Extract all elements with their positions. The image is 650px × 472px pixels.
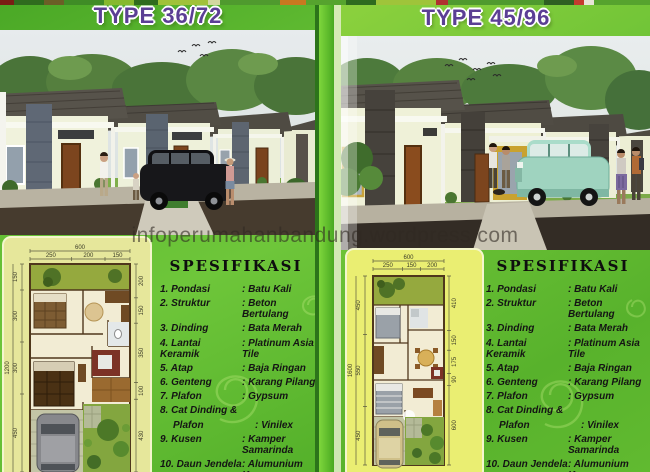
spec-item: 9. Kusen: Kamper Samarinda: [486, 434, 648, 456]
scan-edge-segment: [134, 0, 158, 5]
spec-item-value: : Batu Kali: [242, 284, 322, 295]
spec-item-value: : Baja Ringan: [242, 363, 322, 374]
dimension-label: 300: [13, 362, 19, 373]
spec-item-label: 6. Genteng: [160, 377, 242, 388]
spec-item-value: : Vinilex: [581, 420, 648, 431]
spec-item-value: : Alumunium Kaca: [568, 459, 648, 472]
spec-list-right: 1. Pondasi: Batu Kali2. Struktur: Beton …: [486, 284, 648, 472]
spec-item-value: : Platinum Asia Tile: [568, 338, 648, 360]
brochure-scan: TYPE 36/72 TYPE 45/96: [0, 0, 650, 472]
spec-item: 4. Lantai Keramik: Platinum Asia Tile: [486, 338, 648, 360]
spec-item-value: : Beton Bertulang: [242, 298, 322, 320]
dimension-label: 430: [139, 430, 145, 441]
spec-item-label: 8. Cat Dinding &: [486, 405, 568, 416]
floorplan-card-left: 6002502001501503003004501200200150350100…: [2, 236, 152, 472]
scan-edge-segment: [158, 0, 208, 5]
spec-item: 7. Plafon: Gypsum: [160, 391, 322, 402]
dimension-label: 250: [46, 253, 57, 259]
spec-item-label: 10. Daun Jendela: [486, 459, 568, 472]
spec-item-label: 2. Struktur: [160, 298, 242, 320]
scan-edge-segment: [436, 0, 448, 5]
spec-item: 1. Pondasi: Batu Kali: [486, 284, 648, 295]
spec-item-label: 9. Kusen: [486, 434, 568, 456]
spec-item-value: : Beton Bertulang: [568, 298, 648, 320]
house-rendering-left: [0, 30, 315, 235]
spec-item-label: 1. Pondasi: [486, 284, 568, 295]
spec-item: 10. Daun Jendela: Alumunium Kaca: [486, 459, 648, 472]
scan-edge-segment: [346, 0, 376, 5]
dimension-label: 150: [112, 253, 123, 259]
dimension-annotations: 600250150200450550450160041015017590600: [347, 250, 482, 472]
spec-item-label: 2. Struktur: [486, 298, 568, 320]
dimension-label: 150: [13, 271, 19, 282]
spec-item-value: : Karang Pilang: [242, 377, 322, 388]
dimension-label: 1200: [5, 361, 11, 375]
scan-edge-segment: [64, 0, 104, 5]
spec-item: 9. Kusen: Kamper Samarinda: [160, 434, 322, 456]
spec-item: 6. Genteng: Karang Pilang: [160, 377, 322, 388]
dimension-label: 300: [13, 310, 19, 321]
scan-edge-segment: [280, 0, 306, 5]
dimension-label: 600: [403, 255, 414, 261]
spec-item: 6. Genteng: Karang Pilang: [486, 377, 648, 388]
scan-edge-segment: [44, 0, 64, 5]
scan-edge-segment: [574, 0, 584, 5]
dimension-label: 550: [356, 365, 362, 376]
spec-item-label: Plafon: [160, 420, 255, 431]
scan-edge-segment: [376, 0, 436, 5]
scan-edge-segment: [544, 0, 574, 5]
spec-item: 8. Cat Dinding &: [160, 405, 322, 416]
spec-item: 10. Daun Jendela: Alumunium Kaca: [160, 459, 322, 472]
dimension-label: 450: [356, 300, 362, 311]
spec-item-label: 4. Lantai Keramik: [486, 338, 568, 360]
spec-item: 2. Struktur: Beton Bertulang: [486, 298, 648, 320]
dimension-label: 250: [383, 263, 394, 269]
scan-edge-strip: [0, 0, 650, 5]
spec-item-value: : Platinum Asia Tile: [242, 338, 322, 360]
dimension-label: 600: [75, 245, 86, 251]
dimension-label: 100: [139, 385, 145, 396]
scan-edge-segment: [448, 0, 544, 5]
dog: [493, 189, 505, 195]
spec-item-value: : Gypsum: [242, 391, 322, 402]
floorplan-card-right: 600250150200450550450160041015017590600: [345, 248, 484, 472]
spec-item-label: 3. Dinding: [160, 323, 242, 334]
spec-item-value: : Vinilex: [255, 420, 322, 431]
spec-item-value: : Baja Ringan: [568, 363, 648, 374]
spec-item-label: 1. Pondasi: [160, 284, 242, 295]
scan-edge-segment: [220, 0, 280, 5]
dimension-label: 175: [452, 356, 458, 367]
spec-item: 3. Dinding: Bata Merah: [160, 323, 322, 334]
scan-edge-segment: [104, 0, 134, 5]
house-scene-36: [0, 30, 315, 235]
spec-item-label: 3. Dinding: [486, 323, 568, 334]
fold-divider: [334, 0, 341, 472]
spec-item: Plafon: Vinilex: [160, 420, 322, 431]
dimension-label: 410: [452, 298, 458, 309]
spec-item: 1. Pondasi: Batu Kali: [160, 284, 322, 295]
spec-item-label: Plafon: [486, 420, 581, 431]
dimension-label: 150: [406, 263, 417, 269]
spec-item-label: 6. Genteng: [486, 377, 568, 388]
spec-item-label: 5. Atap: [160, 363, 242, 374]
dimension-label: 350: [139, 347, 145, 358]
page-title-left: TYPE 36/72: [0, 3, 316, 29]
spec-item: 5. Atap: Baja Ringan: [160, 363, 322, 374]
dimension-label: 600: [452, 420, 458, 431]
dimension-label: 200: [83, 253, 94, 259]
scan-edge-segment: [14, 0, 44, 5]
house-scene-45: [341, 36, 650, 250]
scan-edge-segment: [306, 0, 346, 5]
spec-title-left: SPESIFIKASI: [150, 257, 322, 275]
dimension-label: 150: [139, 305, 145, 316]
spec-item-label: 10. Daun Jendela: [160, 459, 242, 472]
spec-item-value: : Alumunium Kaca: [242, 459, 322, 472]
spec-item-value: : Gypsum: [568, 391, 648, 402]
spec-item: 7. Plafon: Gypsum: [486, 391, 648, 402]
scan-edge-segment: [584, 0, 594, 5]
page-title-right: TYPE 45/96: [322, 5, 650, 31]
spec-item-label: 4. Lantai Keramik: [160, 338, 242, 360]
spec-item-value: : Kamper Samarinda: [568, 434, 648, 456]
spec-item-value: [242, 405, 322, 416]
spec-item: Plafon: Vinilex: [486, 420, 648, 431]
spec-item-label: 7. Plafon: [160, 391, 242, 402]
spec-item-label: 9. Kusen: [160, 434, 242, 456]
spec-item-label: 7. Plafon: [486, 391, 568, 402]
dimension-label: 200: [139, 275, 145, 286]
dimension-label: 450: [13, 427, 19, 438]
spec-item-value: : Kamper Samarinda: [242, 434, 322, 456]
spec-item: 3. Dinding: Bata Merah: [486, 323, 648, 334]
dimension-label: 200: [427, 263, 438, 269]
dimension-label: 90: [452, 375, 458, 382]
spec-item-value: : Bata Merah: [568, 323, 648, 334]
spec-item-value: [568, 405, 648, 416]
spec-item: 8. Cat Dinding &: [486, 405, 648, 416]
dimension-label: 450: [356, 430, 362, 441]
dimension-label: 150: [452, 335, 458, 346]
spec-item-label: 8. Cat Dinding &: [160, 405, 242, 416]
spec-item: 5. Atap: Baja Ringan: [486, 363, 648, 374]
scan-edge-segment: [0, 0, 14, 5]
spec-item: 2. Struktur: Beton Bertulang: [160, 298, 322, 320]
spec-item-value: : Karang Pilang: [568, 377, 648, 388]
spec-item-label: 5. Atap: [486, 363, 568, 374]
dimension-label: 1600: [348, 363, 354, 377]
scan-edge-segment: [594, 0, 650, 5]
spec-item-value: : Batu Kali: [568, 284, 648, 295]
scan-edge-segment: [208, 0, 220, 5]
spec-item-value: : Bata Merah: [242, 323, 322, 334]
spec-item: 4. Lantai Keramik: Platinum Asia Tile: [160, 338, 322, 360]
dimension-annotations: 6002502001501503003004501200200150350100…: [4, 238, 150, 472]
spec-list-left: 1. Pondasi: Batu Kali2. Struktur: Beton …: [160, 284, 322, 472]
house-rendering-right: [341, 36, 650, 250]
spec-title-right: SPESIFIKASI: [480, 257, 646, 275]
